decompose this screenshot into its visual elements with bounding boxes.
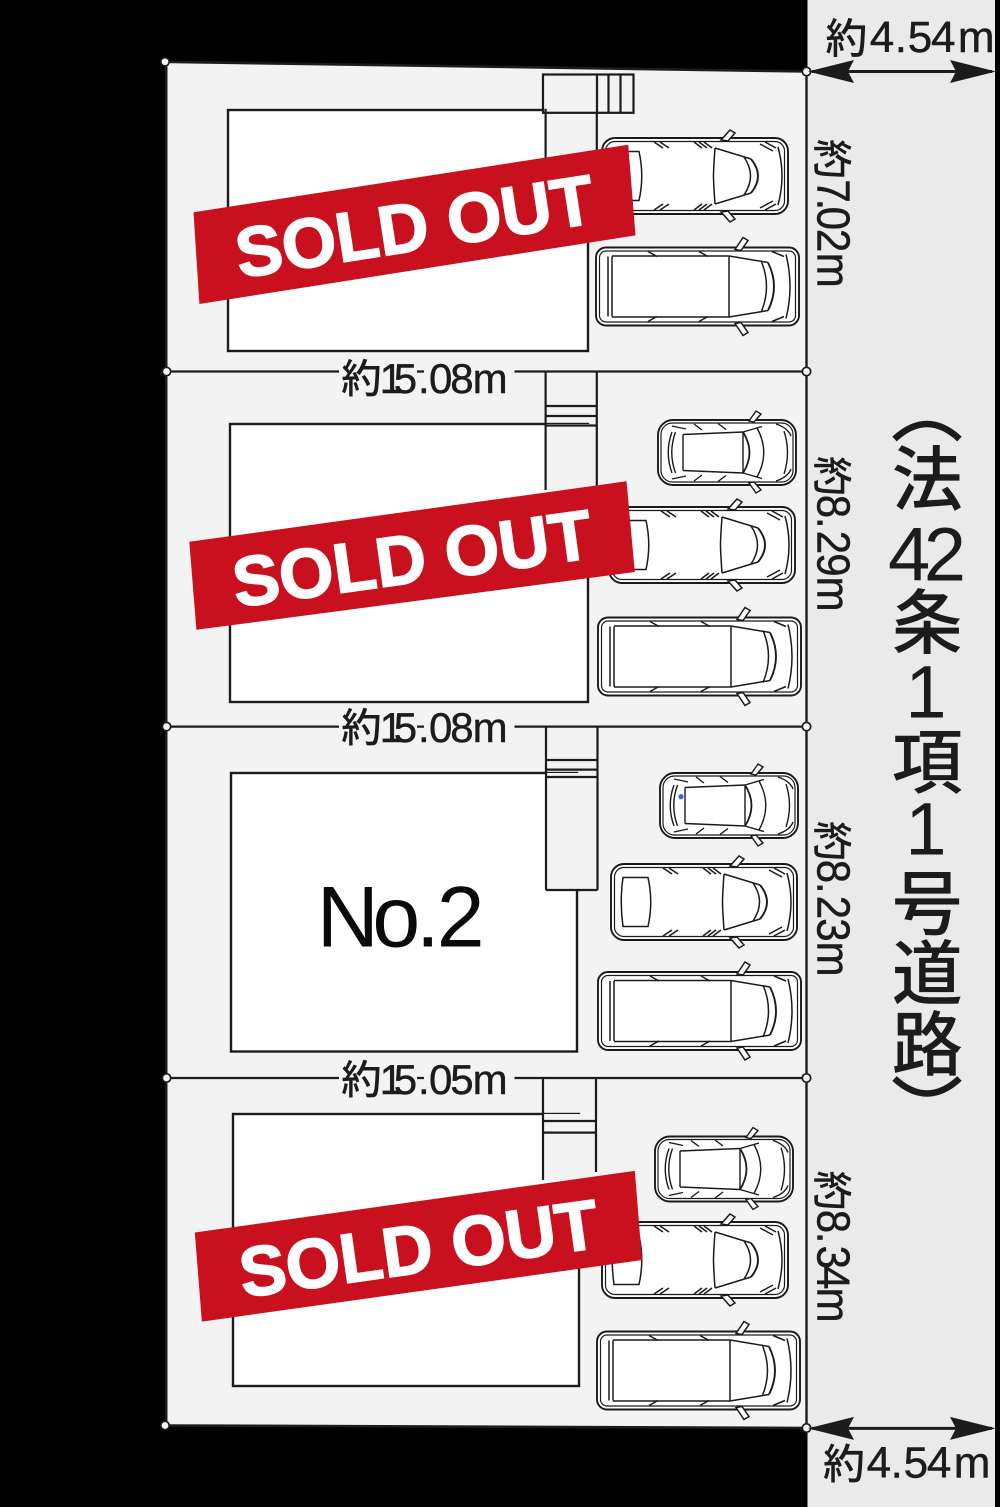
svg-text:4.54m: 4.54m <box>870 13 995 62</box>
svg-text:15.08m: 15.08m <box>380 355 508 402</box>
svg-text:7.02m: 7.02m <box>807 179 858 287</box>
svg-text:No.2: No.2 <box>317 869 485 965</box>
svg-text:15.05m: 15.05m <box>380 1056 508 1103</box>
svg-text:4.54m: 4.54m <box>867 1439 991 1488</box>
svg-text:42: 42 <box>888 513 966 598</box>
svg-text:1: 1 <box>905 651 946 734</box>
svg-text:15.08m: 15.08m <box>380 704 508 751</box>
svg-text:8.29m: 8.29m <box>807 495 858 612</box>
svg-text:1: 1 <box>905 788 946 871</box>
svg-text:8.34m: 8.34m <box>807 1210 858 1323</box>
svg-text:8.23m: 8.23m <box>807 860 858 977</box>
